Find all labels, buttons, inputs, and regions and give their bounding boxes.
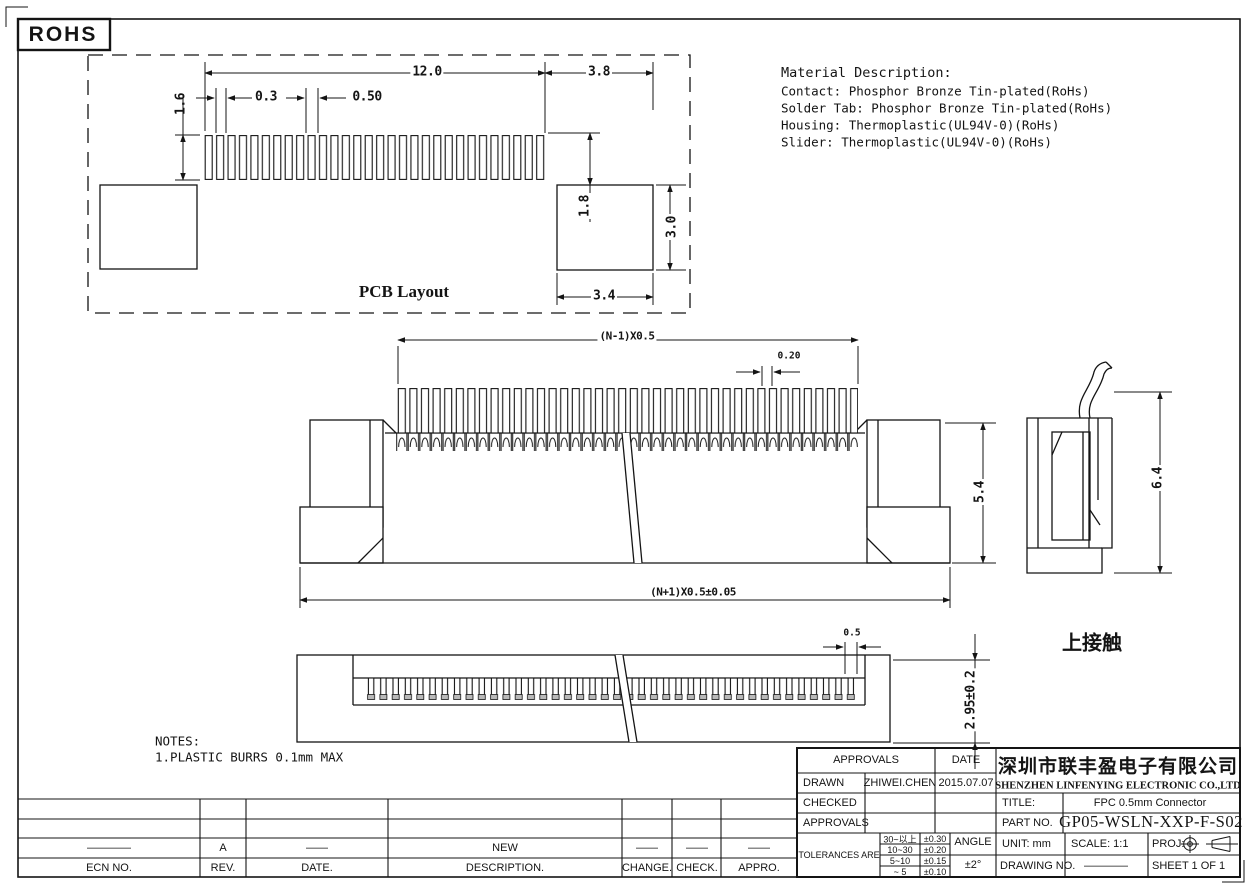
material-line-slider: Slider: Thermoplastic(UL94V-0)(RoHs) [781, 135, 1052, 150]
date-header: DATE [952, 754, 981, 766]
front-view [300, 340, 996, 608]
material-line-housing: Housing: Thermoplastic(UL94V-0)(RoHs) [781, 118, 1059, 133]
pcb-anchor-pad-right [557, 185, 653, 270]
part-no-value: GP05-WSLN-XXP-F-S02 [1059, 812, 1243, 832]
dim-anchor-width: 3.4 [591, 289, 617, 304]
title-value: FPC 0.5mm Connector [1094, 797, 1206, 809]
rev-header-rev: REV. [211, 862, 236, 874]
rev-header-ecn: ECN NO. [86, 862, 132, 874]
part-no-label: PART NO. [1002, 817, 1053, 829]
dim-insertion-depth: 2.95±0.2 [964, 669, 979, 732]
tol-value-1: ±0.30 [924, 834, 946, 844]
drawing-no-value: ———— [1084, 860, 1128, 872]
notes-item-1: 1.PLASTIC BURRS 0.1mm MAX [155, 750, 343, 765]
angle-value: ±2° [965, 859, 982, 871]
dim-front-height: 5.4 [973, 479, 988, 505]
rev-header-date: DATE. [301, 862, 333, 874]
projection-symbol [1181, 835, 1238, 853]
unit-label: UNIT: mm [1002, 838, 1051, 850]
company-name-cn: 深圳市联丰盈电子有限公司 [998, 752, 1238, 779]
dim-total-width: (N+1)X0.5±0.05 [648, 586, 738, 599]
approvals-header: APPROVALS [833, 754, 899, 766]
drawing-no-label: DRAWING NO. [1000, 860, 1075, 872]
drawn-name: ZHIWEI.CHEN [864, 777, 937, 789]
scale-label: SCALE: 1:1 [1071, 838, 1128, 850]
dim-side-height: 6.4 [1151, 465, 1166, 491]
tol-range-4: ~ 5 [894, 867, 907, 877]
dim-anchor-height: 3.0 [665, 214, 680, 240]
dim-bottom-pitch: 0.5 [843, 628, 860, 639]
rev-change-value: —— [636, 842, 658, 854]
proj-label: PROJ: [1152, 838, 1184, 850]
drawn-date: 2015.07.07 [938, 777, 993, 789]
dim-pad-width: 0.3 [253, 90, 279, 105]
rev-header-appro: APPRO. [738, 862, 780, 874]
dim-pitch: 0.50 [350, 90, 383, 105]
dim-pin-span: (N-1)X0.5 [597, 330, 656, 343]
sheet-label: SHEET 1 OF 1 [1152, 860, 1225, 872]
rev-header-check: CHECK. [676, 862, 718, 874]
material-description-title: Material Description: [781, 65, 952, 81]
pcb-anchor-pad-left [100, 185, 197, 269]
rev-appro-value: —— [748, 842, 770, 854]
tolerances-label: TOLERANCES ARE [798, 850, 879, 860]
material-line-solder-tab: Solder Tab: Phosphor Bronze Tin-plated(R… [781, 101, 1112, 116]
tol-range-1: 30~以上 [883, 833, 916, 846]
rohs-label: ROHS [29, 23, 98, 47]
tol-range-2: 10~30 [887, 845, 912, 855]
drawing-sheet: ROHS 12.0 3.8 0.3 0.50 1.6 1.8 3.0 3.4 P… [0, 0, 1249, 889]
material-line-contact: Contact: Phosphor Bronze Tin-plated(RoHs… [781, 84, 1090, 99]
dim-right-gap: 3.8 [586, 65, 612, 80]
pcb-layout-title: PCB Layout [359, 282, 449, 302]
upper-contact-label: 上接触 [1062, 627, 1122, 656]
rev-header-change: CHANGE. [622, 862, 672, 874]
dim-pad-row-width: 12.0 [410, 65, 443, 80]
rev-header-description: DESCRIPTION. [466, 862, 544, 874]
drawn-label: DRAWN [803, 777, 844, 789]
angle-label: ANGLE [954, 836, 991, 848]
dim-vertical-gap: 1.8 [578, 193, 593, 219]
rev-rev-value: A [219, 842, 226, 854]
rev-description-value: NEW [492, 842, 518, 854]
tol-value-4: ±0.10 [924, 867, 946, 877]
rev-date-value: —— [306, 842, 328, 854]
rev-ecn-value: ———— [87, 842, 131, 854]
company-name-en: SHENZHEN LINFENYING ELECTRONIC CO.,LTD [995, 781, 1241, 792]
dim-pin-width: 0.20 [778, 351, 801, 362]
bottom-contact-comb [365, 678, 857, 705]
tol-value-3: ±0.15 [924, 856, 946, 866]
approved-label: APPROVALS [803, 817, 869, 829]
pcb-pad-row [203, 135, 546, 180]
notes-title: NOTES: [155, 734, 200, 749]
checked-label: CHECKED [803, 797, 857, 809]
title-label: TITLE: [1002, 797, 1035, 809]
tol-range-3: 5~10 [890, 856, 910, 866]
dim-pad-height: 1.6 [174, 93, 189, 115]
tol-value-2: ±0.20 [924, 845, 946, 855]
rev-check-value: —— [686, 842, 708, 854]
